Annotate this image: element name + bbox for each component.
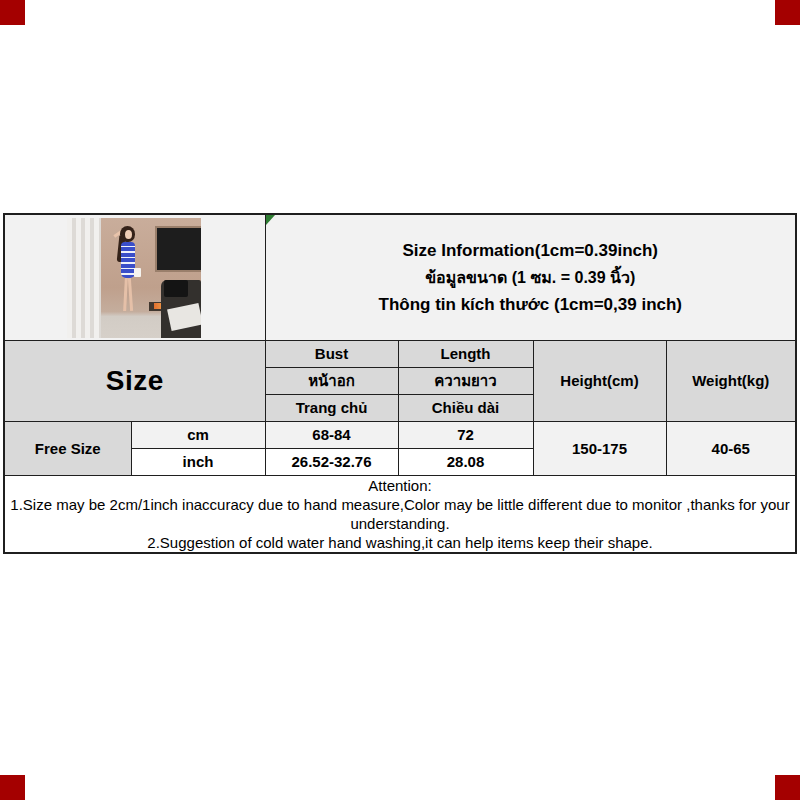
length-cm-value: 72 [398, 421, 533, 448]
size-chart-page: { "page": { "corner_marker_color": "#a40… [0, 0, 800, 800]
bag-graphic [164, 280, 188, 297]
bust-header-vi: Trang chủ [265, 394, 398, 421]
product-photo [67, 218, 201, 338]
attention-note-2: 2.Suggestion of cold water hand washing,… [5, 533, 795, 552]
striped-dress-graphic [121, 242, 135, 278]
attention-section: Attention: 1.Size may be 2cm/1inch inacc… [4, 475, 796, 553]
size-table: Size Information(1cm=0.39inch) ข้อมูลขนา… [3, 213, 797, 554]
unit-inch-label: inch [131, 448, 265, 475]
free-size-label: Free Size [4, 421, 131, 475]
weight-column-header: Weight(kg) [666, 340, 796, 421]
model-face-graphic [125, 230, 132, 239]
cell-comment-flag-icon [266, 215, 275, 225]
size-info-title-vi: Thông tin kích thước (1cm=0,39 inch) [266, 291, 796, 318]
corner-marker-top-left [0, 0, 25, 25]
attention-note-1: 1.Size may be 2cm/1inch inaccuracy due t… [5, 495, 795, 533]
table-header-row: Size Bust Length Height(cm) Weight(kg) [4, 340, 796, 367]
bust-header-en: Bust [265, 340, 398, 367]
bust-cm-value: 68-84 [265, 421, 398, 448]
size-info-header-cell: Size Information(1cm=0.39inch) ข้อมูลขนา… [265, 214, 796, 340]
weight-value: 40-65 [666, 421, 796, 475]
height-column-header: Height(cm) [533, 340, 666, 421]
length-header-vi: Chiều dài [398, 394, 533, 421]
size-column-header: Size [4, 340, 265, 421]
tv-graphic [157, 228, 201, 270]
size-info-title-en: Size Information(1cm=0.39inch) [266, 237, 796, 264]
size-info-title-th: ข้อมูลขนาด (1 ซม. = 0.39 นิ้ว) [266, 264, 796, 291]
corner-marker-bottom-left [0, 775, 25, 800]
photo-header-row: Size Information(1cm=0.39inch) ข้อมูลขนา… [4, 214, 796, 340]
bust-header-th: หน้าอก [265, 367, 398, 394]
cm-values-row: Free Size cm 68-84 72 150-175 40-65 [4, 421, 796, 448]
product-photo-cell [4, 214, 265, 340]
model-leg-graphic [128, 278, 133, 311]
length-header-en: Length [398, 340, 533, 367]
corner-marker-top-right [775, 0, 800, 25]
bust-inch-value: 26.52-32.76 [265, 448, 398, 475]
unit-cm-label: cm [131, 421, 265, 448]
corner-marker-bottom-right [775, 775, 800, 800]
attention-title: Attention: [5, 476, 795, 495]
length-header-th: ความยาว [398, 367, 533, 394]
attention-row: Attention: 1.Size may be 2cm/1inch inacc… [4, 475, 796, 553]
handbag-graphic [134, 268, 141, 277]
length-inch-value: 28.08 [398, 448, 533, 475]
height-value: 150-175 [533, 421, 666, 475]
curtain-graphic [67, 218, 101, 338]
model-leg-graphic [123, 278, 128, 311]
